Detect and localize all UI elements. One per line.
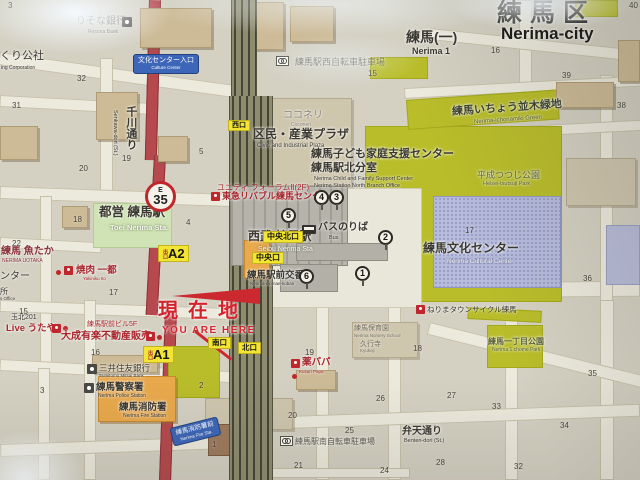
resona-bank-label-ja: りそな銀行	[76, 17, 126, 28]
station-area-map-photo: 練馬区 Nerima-city 練馬(一) Nerima 1 りそな銀行 Res…	[0, 0, 640, 480]
taisei-label-line2: 大成有楽不動産販売	[61, 332, 151, 343]
poi-location-dot	[157, 335, 162, 340]
bicycle-icon	[276, 56, 289, 66]
oedo-line-station-number-badge: E 35	[145, 181, 176, 212]
police-icon	[84, 383, 94, 393]
block-number: 17	[465, 226, 474, 235]
block-number: 26	[376, 394, 385, 403]
block-number: 28	[436, 458, 445, 467]
pharmacy-icon	[291, 359, 300, 368]
bus-stop-marker: 2	[378, 230, 393, 245]
bicycle-icon	[280, 436, 293, 446]
road-segment	[316, 300, 329, 480]
block-number: 20	[79, 164, 88, 173]
kusuri-papa-label-ja: 薬パパ	[302, 358, 331, 368]
itchome-park-label-en: Nerima 1 chome Park	[492, 348, 540, 353]
police-box-label-ja: 練馬駅前交番	[247, 271, 304, 281]
fire-station-label-en: Nerima Fire Station	[123, 414, 166, 419]
block-number: 33	[492, 402, 501, 411]
senkawa-street-label-en: Senkawa-dori (St.)	[111, 110, 117, 156]
smbc-label-ja: 三井住友銀行	[99, 364, 150, 373]
bicycle-parking-south-label: 練馬駅南自転車駐車場	[295, 438, 375, 447]
police-box-label-en: Nerima-ekimae-koban	[250, 282, 294, 287]
block-number: 3	[8, 1, 12, 10]
cycle-port-icon	[416, 305, 425, 314]
block-number: 19	[122, 154, 131, 163]
town-cycle-label: ねりまタウンサイクル練馬	[427, 306, 517, 314]
block-number: 32	[514, 462, 523, 471]
corporation-label-ja: くり公社	[0, 51, 44, 63]
block-number: 22	[12, 239, 21, 248]
tsutsuji-park-label-ja: 平成つつじ公園	[477, 171, 540, 181]
block-number: 38	[617, 101, 626, 110]
block-number: 16	[91, 348, 100, 357]
exit-a1-tag: 出口 A1	[143, 346, 174, 363]
road-segment	[40, 196, 52, 364]
map-title-ja: 練馬区	[497, 0, 596, 27]
bus-stop-marker: 5	[281, 208, 296, 223]
corporation-label-en: ing Corporation	[1, 66, 35, 71]
block-number: 2	[199, 381, 203, 390]
poi-location-dot	[292, 374, 297, 379]
block-number: 5	[199, 147, 203, 156]
bus-stop-sign-culture-center: 文化センター入口 Culture Center	[133, 54, 199, 74]
block-number: 31	[12, 101, 21, 110]
restaurant-icon	[64, 266, 73, 275]
block-number: 32	[77, 74, 86, 83]
police-station-label-en: Nerima Police Station	[98, 394, 146, 399]
block-number: 1	[212, 440, 216, 449]
exit-prefix: 出口	[147, 350, 152, 360]
bicycle-parking-west-label: 練馬駅西自転車駐車場	[295, 58, 385, 68]
uotaka-label-ja: 練馬 魚たか	[1, 247, 54, 258]
railway-tracks-north	[231, 0, 257, 98]
child-support-label-ja2: 練馬駅北分室	[311, 163, 377, 175]
resona-bank-label-en: Resona Bank	[88, 30, 118, 35]
exit-a2-tag: 出口 A2	[158, 245, 189, 262]
bus-stop-sign-en: Culture Center	[138, 65, 194, 70]
taisei-label-line1: 練馬駅前ビル5F	[87, 321, 137, 329]
cultural-center-label-en: Nerima Cultural Center	[447, 258, 513, 265]
block-number: 40	[629, 1, 638, 10]
child-support-label-ja1: 練馬子ども家庭支援センター	[311, 149, 454, 161]
block-number: 20	[288, 411, 297, 420]
exit-a2-label: A2	[168, 247, 185, 260]
bus-icon	[302, 225, 316, 234]
bus-stop-sign-ja: 文化センター入口	[138, 57, 194, 64]
toei-nerima-station-label-en: Toei Nerima Sta.	[110, 224, 168, 232]
station-number: 35	[153, 194, 167, 206]
bus-stop-marker: 1	[355, 266, 370, 281]
building	[566, 158, 636, 206]
map-title-en: Nerima-city	[501, 25, 594, 43]
block-number: 18	[413, 344, 422, 353]
realtor-icon	[146, 332, 155, 341]
railway-tracks	[229, 96, 273, 480]
road-segment	[38, 368, 50, 480]
bus-boarding-label-ja: バスのりば	[318, 223, 368, 234]
west-exit-tag: 西口	[228, 120, 250, 131]
building	[618, 40, 640, 82]
cultural-center-label-ja: 練馬文化センター	[423, 242, 519, 255]
child-support-label-en2: Nerima Station North Branch Office	[314, 184, 400, 190]
building	[0, 126, 38, 160]
coconeri-label-ja: ココネリ	[283, 111, 323, 122]
bus-boarding-label-en: Bus	[329, 236, 338, 242]
block-number: 24	[380, 466, 389, 475]
benten-street-label-ja: 弁天通り	[402, 427, 442, 438]
senkawa-street-label-ja: 千川通り	[124, 106, 136, 150]
building	[140, 8, 212, 48]
kusuri-papa-label-en: Kusuri Papa	[299, 370, 324, 375]
block-number: 19	[305, 348, 314, 357]
realtor-icon	[211, 192, 220, 201]
yakiniku-label-en: Yakiniku Ito	[83, 277, 106, 282]
building	[606, 225, 640, 285]
you-are-here-label-ja: 現在地	[158, 301, 248, 323]
road-segment	[600, 300, 614, 480]
bus-stop-marker: 4	[314, 190, 329, 205]
block-number: 36	[583, 274, 592, 283]
south-exit-tag: 南口	[208, 337, 231, 349]
police-station-label-ja: 練馬警察署	[96, 383, 144, 393]
exit-prefix: 出口	[162, 249, 167, 259]
block-number: 39	[562, 71, 571, 80]
block-number: 34	[560, 421, 569, 430]
bank-icon	[87, 364, 97, 374]
itchome-park-label-ja: 練馬一丁目公園	[488, 338, 544, 347]
bus-stop-marker: 6	[299, 269, 314, 284]
fire-station-label-ja: 練馬消防署	[119, 403, 167, 413]
poi-location-dot	[56, 270, 61, 275]
bank-icon	[122, 17, 132, 27]
block-number: 27	[447, 391, 456, 400]
central-north-exit-tag: 中央北口	[263, 231, 303, 243]
smbc-label-en: Sumitomo Mitsui Bank	[99, 374, 144, 379]
north-exit-tag: 北口	[238, 342, 261, 354]
building	[556, 82, 614, 108]
yakiniku-label-ja: 焼肉 一都	[76, 266, 117, 276]
building	[290, 6, 334, 42]
district-label-ja: 練馬(一)	[406, 30, 457, 45]
block-number: 25	[345, 426, 354, 435]
karaoke-icon	[52, 324, 61, 333]
nursery-label-ja: 練馬保育園	[354, 325, 389, 333]
you-are-here-label-en: YOU ARE HERE	[162, 326, 256, 337]
cutoff-office-label-en: s Office	[0, 297, 15, 302]
temple-label-en: Kyukoji	[360, 349, 375, 354]
utaya-label: Live うたや	[6, 324, 56, 334]
block-number: 21	[294, 461, 303, 470]
benten-street-label-en: Benten-dori (St.)	[404, 439, 444, 445]
block-number: 15	[368, 69, 377, 78]
bus-stop-marker: 3	[329, 190, 344, 205]
central-exit-tag: 中央口	[252, 252, 284, 264]
block-number: 3	[40, 386, 44, 395]
block-number: 17	[109, 288, 118, 297]
block-number: 4	[186, 218, 190, 227]
block-number: 35	[588, 369, 597, 378]
uotaka-label-en: NERIMA UOTAKA	[2, 259, 43, 264]
civic-plaza-label-ja: 区民・産業プラザ	[253, 128, 349, 141]
cutoff-center-label: ンター	[0, 272, 30, 283]
nursery-label-en: Nerima Nursery School	[354, 334, 401, 339]
block-number: 15	[19, 307, 28, 316]
block-number: 16	[491, 46, 500, 55]
exit-a1-label: A1	[153, 348, 170, 361]
district-label-en: Nerima 1	[412, 47, 450, 57]
tsutsuji-park-label-en: Heisei-tsutsuji Park	[483, 182, 530, 188]
building	[158, 136, 188, 162]
block-number: 18	[73, 215, 82, 224]
